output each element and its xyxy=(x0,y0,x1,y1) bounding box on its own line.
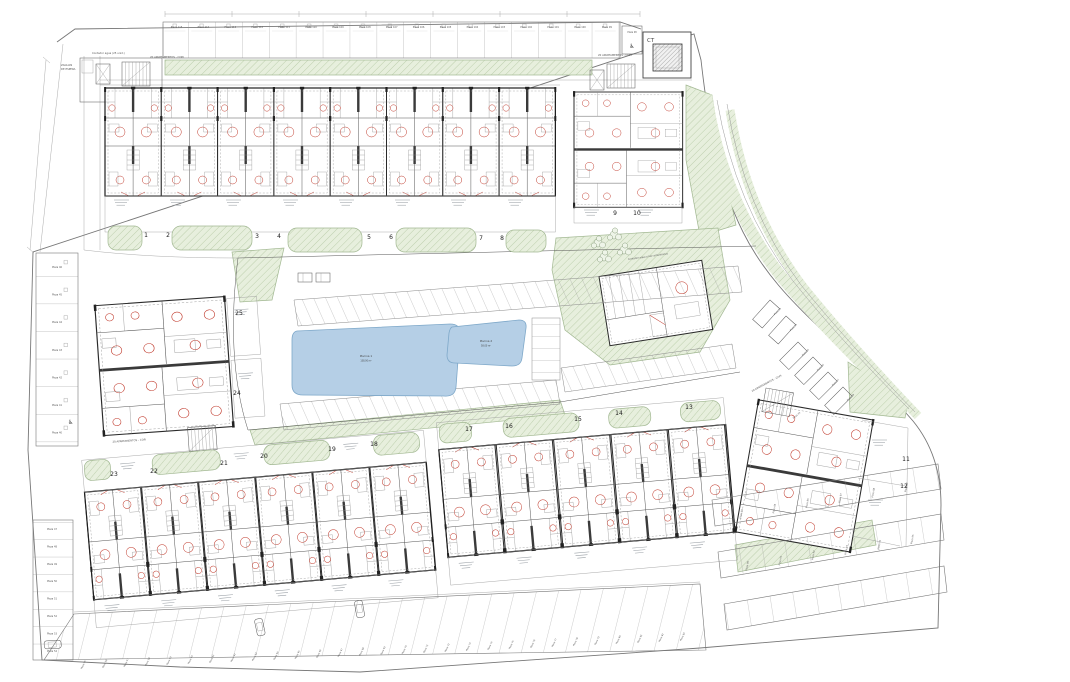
parking-space-label: Plaza 44 xyxy=(52,321,63,324)
parking-space-label: Plaza 35 xyxy=(801,348,810,357)
parcel-number: 16 xyxy=(505,423,513,430)
parking-space-label: Plaza 105 xyxy=(440,26,452,29)
parcel-number: 17 xyxy=(465,426,473,433)
parcel-number: 25 xyxy=(235,310,243,317)
stairs-icon xyxy=(607,64,635,88)
parcel-number: 8 xyxy=(500,235,504,242)
parcel-number: 7 xyxy=(479,235,483,242)
parcel-number: 23 xyxy=(110,471,118,478)
parking-space-label: Plaza 51 xyxy=(47,598,58,601)
pool-area: 58.00 m² xyxy=(481,345,491,348)
parking-space-label: Plaza 108 xyxy=(359,26,371,29)
disabled-parking-icon: ♿ xyxy=(629,43,634,50)
parking-space-label: Plaza 107 xyxy=(386,26,398,29)
pool-2: Piscina 2 58.00 m² xyxy=(447,320,526,366)
parcel-number: 19 xyxy=(328,446,336,453)
waiting-hall-label2: DE ESPERA xyxy=(61,67,76,71)
parking-space-label: Plaza 46 xyxy=(52,266,63,269)
pool-label: Piscina 2 xyxy=(480,339,493,343)
parking-space-label: Plaza 43 xyxy=(52,349,63,352)
parcel-number: 3 xyxy=(255,233,259,240)
site-plan-drawing: Plaza 115Plaza 114Plaza 113Plaza 112Plaz… xyxy=(0,0,1070,682)
parking-space-label: Plaza 111 xyxy=(278,26,290,29)
parcel-number: 14 xyxy=(615,410,623,417)
pool-1: Piscina 1 138.00 m² xyxy=(292,324,460,396)
parking-space-label: Plaza 106 xyxy=(413,26,425,29)
parking-space-label: Plaza 52 xyxy=(47,615,58,618)
parking-space-label: Plaza 102 xyxy=(520,26,532,29)
parking-space-label: Plaza 45 xyxy=(52,294,63,297)
parcel-number: 22 xyxy=(150,468,158,475)
parcel-number: 9 xyxy=(613,210,617,217)
parcel-number: 5 xyxy=(367,234,371,241)
parking-space-label: Plaza 110 xyxy=(305,26,317,29)
parking-space-label: Plaza 42 xyxy=(52,376,63,379)
parking-space-label: Plaza 33 xyxy=(773,307,782,316)
parking-top-row: Plaza 115Plaza 114Plaza 113Plaza 112Plaz… xyxy=(163,22,642,58)
parking-space-label: Plaza 103 xyxy=(493,26,505,29)
pool-label: Piscina 1 xyxy=(360,354,373,358)
parcel-number: 6 xyxy=(389,234,393,241)
parking-space-label: Plaza 98 xyxy=(627,31,637,34)
transformer-label: CT xyxy=(647,38,655,44)
parking-space-label: Plaza 99 xyxy=(602,26,613,29)
disabled-parking-icon: ♿ xyxy=(68,419,73,426)
parking-space-label: Plaza 115 xyxy=(171,26,183,29)
building-bottom-middle xyxy=(436,398,738,586)
parcel-number: 12 xyxy=(900,483,908,490)
parking-left-upper: Plaza 46Plaza 45Plaza 44Plaza 43Plaza 42… xyxy=(36,253,78,446)
elevator-icon xyxy=(96,64,110,84)
parking-space-label: Plaza 100 xyxy=(574,26,586,29)
pool-area: 138.00 m² xyxy=(360,360,371,363)
parking-space-label: Plaza 101 xyxy=(547,26,559,29)
parking-space-label: Plaza 41 xyxy=(52,404,63,407)
apartments-note: 20 APARTAMENTOS - COPI xyxy=(598,53,632,57)
parking-space-label: Plaza 47 xyxy=(47,528,58,531)
apartments-note: 20 APARTAMENTOS - COPI xyxy=(150,55,184,59)
parking-space-label: Plaza 114 xyxy=(198,26,210,29)
parking-space-label: Plaza 113 xyxy=(224,26,236,29)
building-duplex-9-10 xyxy=(573,91,684,223)
building-top-row xyxy=(104,87,556,252)
parking-space-label: Plaza 50 xyxy=(47,580,58,583)
parking-space-label: Plaza 36 xyxy=(816,363,825,372)
parcel-number: 11 xyxy=(902,456,910,463)
transformer-station: CT xyxy=(643,32,691,78)
parcel-number: 13 xyxy=(685,404,693,411)
parking-space-label: Plaza 48 xyxy=(47,545,58,548)
parking-bottom-row: Plaza 55Plaza 56Plaza 57Plaza 58Plaza 59… xyxy=(44,584,706,670)
apartments-note: 20 APARTAMENTOS - COPI xyxy=(112,437,146,443)
parking-space-label: Plaza 109 xyxy=(332,26,344,29)
site-plan: Plaza 115Plaza 114Plaza 113Plaza 112Plaz… xyxy=(0,0,1070,682)
parcel-number: 21 xyxy=(220,460,228,467)
water-meter-note: Contador agua (25 unid.) xyxy=(92,51,125,55)
building-block-24-25: 20 APARTAMENTOS - COPI xyxy=(94,293,267,457)
parking-space-label: Plaza 34 xyxy=(789,323,798,332)
parcel-number: 24 xyxy=(233,390,241,397)
parcel-number: 15 xyxy=(574,416,582,423)
waiting-hall-label: ZAGUAN xyxy=(61,63,72,67)
parking-space-label: Plaza 49 xyxy=(47,563,58,566)
parking-space-label: Plaza 53 xyxy=(47,632,58,635)
parcel-number: 18 xyxy=(370,441,378,448)
parking-space-label: Plaza 40 xyxy=(52,432,63,435)
parking-space-label: Plaza 37 xyxy=(831,378,840,387)
parcel-number: 2 xyxy=(166,232,170,239)
parking-space-label: Plaza 112 xyxy=(251,26,263,29)
entry-utility-block-2: 20 APARTAMENTOS - COPI xyxy=(590,53,635,90)
parking-space-label: Plaza 104 xyxy=(467,26,479,29)
stairs-icon xyxy=(122,62,150,86)
parcel-number: 20 xyxy=(260,453,268,460)
parcel-number: 4 xyxy=(277,233,281,240)
parcel-number: 1 xyxy=(144,232,148,239)
parcel-number: 10 xyxy=(633,210,641,217)
parking-space-label: Plaza 55 xyxy=(80,659,87,669)
tree-icon xyxy=(607,228,621,240)
